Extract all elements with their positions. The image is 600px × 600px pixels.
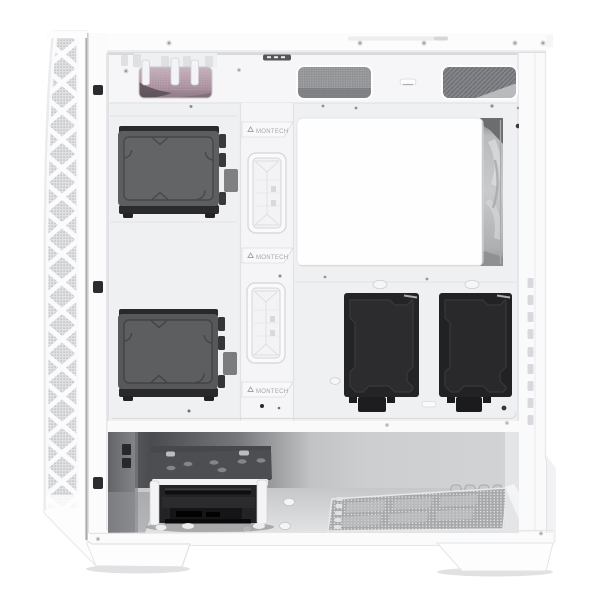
svg-text:MONTECH: MONTECH [256,129,288,135]
svg-text:MONTECH: MONTECH [256,255,288,261]
svg-text:MONTECH: MONTECH [256,389,288,395]
